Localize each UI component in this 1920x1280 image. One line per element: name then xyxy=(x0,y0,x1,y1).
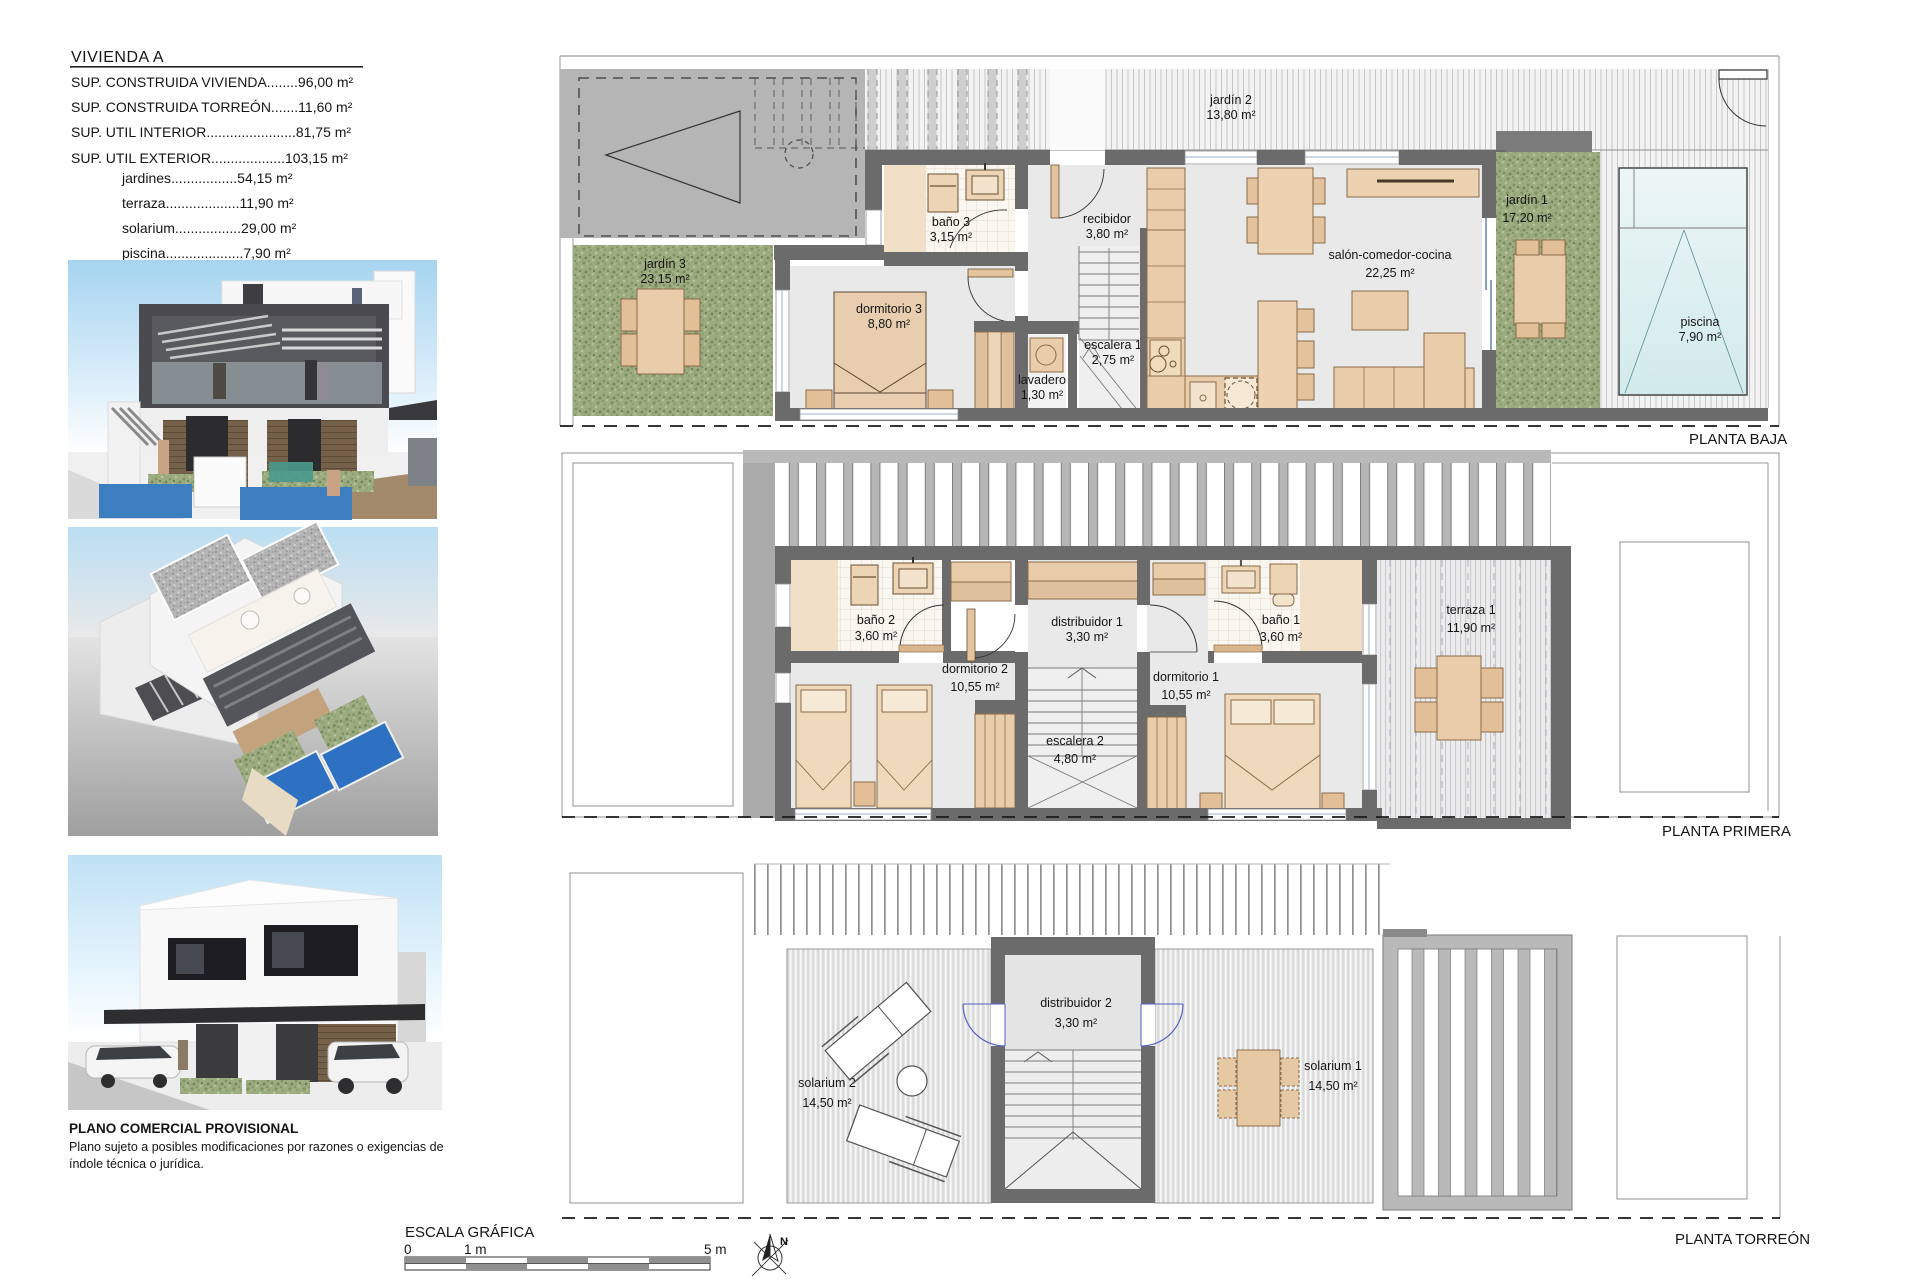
svg-text:piscina....................7,9: piscina....................7,90 m² xyxy=(122,245,291,261)
svg-text:22,25 m²: 22,25 m² xyxy=(1365,266,1414,280)
svg-text:PLANO COMERCIAL PROVISIONAL: PLANO COMERCIAL PROVISIONAL xyxy=(69,1121,298,1136)
svg-text:baño 2: baño 2 xyxy=(857,613,895,627)
svg-text:distribuidor 2: distribuidor 2 xyxy=(1040,996,1112,1010)
svg-text:3,30 m²: 3,30 m² xyxy=(1066,630,1108,644)
svg-text:SUP. CONSTRUIDA VIVIENDA......: SUP. CONSTRUIDA VIVIENDA........96,00 m² xyxy=(71,74,353,90)
svg-text:10,55 m²: 10,55 m² xyxy=(950,680,999,694)
svg-text:baño 1: baño 1 xyxy=(1262,613,1300,627)
svg-text:solarium 1: solarium 1 xyxy=(1304,1059,1362,1073)
svg-text:1 m: 1 m xyxy=(464,1242,487,1257)
svg-text:5 m: 5 m xyxy=(704,1242,727,1257)
svg-text:recibidor: recibidor xyxy=(1083,212,1131,226)
svg-text:14,50 m²: 14,50 m² xyxy=(1308,1079,1357,1093)
svg-text:SUP. UTIL EXTERIOR............: SUP. UTIL EXTERIOR...................103… xyxy=(71,150,348,166)
svg-text:dormitorio 3: dormitorio 3 xyxy=(856,302,922,316)
svg-text:solarium 2: solarium 2 xyxy=(798,1076,856,1090)
svg-text:14,50 m²: 14,50 m² xyxy=(802,1096,851,1110)
svg-text:escalera 2: escalera 2 xyxy=(1046,734,1104,748)
svg-text:dormitorio 2: dormitorio 2 xyxy=(942,662,1008,676)
svg-text:3,60 m²: 3,60 m² xyxy=(855,629,897,643)
svg-text:PLANTA TORREÓN: PLANTA TORREÓN xyxy=(1675,1231,1810,1248)
svg-text:índole técnica o jurídica.: índole técnica o jurídica. xyxy=(69,1157,204,1171)
svg-text:7,90 m²: 7,90 m² xyxy=(1679,330,1721,344)
svg-text:SUP. UTIL INTERIOR............: SUP. UTIL INTERIOR......................… xyxy=(71,124,351,140)
svg-text:13,80 m²: 13,80 m² xyxy=(1206,108,1255,122)
svg-text:3,80 m²: 3,80 m² xyxy=(1086,227,1128,241)
svg-text:8,80 m²: 8,80 m² xyxy=(868,317,910,331)
svg-text:lavadero: lavadero xyxy=(1018,373,1066,387)
svg-text:3,60 m²: 3,60 m² xyxy=(1260,630,1302,644)
svg-text:3,30 m²: 3,30 m² xyxy=(1055,1016,1097,1030)
svg-text:solarium.................29,00: solarium.................29,00 m² xyxy=(122,220,297,236)
svg-text:terraza...................11,9: terraza...................11,90 m² xyxy=(122,195,294,211)
svg-text:N: N xyxy=(780,1236,788,1248)
svg-text:salón-comedor-cocina: salón-comedor-cocina xyxy=(1329,248,1452,262)
svg-text:PLANTA PRIMERA: PLANTA PRIMERA xyxy=(1662,823,1791,840)
svg-text:piscina: piscina xyxy=(1681,315,1720,329)
svg-text:23,15 m²: 23,15 m² xyxy=(640,272,689,286)
svg-text:4,80 m²: 4,80 m² xyxy=(1054,752,1096,766)
svg-text:10,55 m²: 10,55 m² xyxy=(1161,688,1210,702)
svg-text:1,30 m²: 1,30 m² xyxy=(1021,388,1063,402)
svg-text:Plano sujeto a posibles modifi: Plano sujeto a posibles modificaciones p… xyxy=(69,1140,444,1154)
svg-text:distribuidor 1: distribuidor 1 xyxy=(1051,615,1123,629)
svg-text:SUP. CONSTRUIDA TORREÓN.......: SUP. CONSTRUIDA TORREÓN.......11,60 m² xyxy=(71,99,353,115)
svg-text:VIVIENDA A: VIVIENDA A xyxy=(71,49,164,66)
svg-text:ESCALA GRÁFICA: ESCALA GRÁFICA xyxy=(405,1224,534,1241)
svg-text:17,20 m²: 17,20 m² xyxy=(1502,211,1551,225)
svg-text:2,75 m²: 2,75 m² xyxy=(1092,353,1134,367)
svg-text:PLANTA BAJA: PLANTA BAJA xyxy=(1689,431,1787,448)
svg-text:baño 3: baño 3 xyxy=(932,215,970,229)
svg-text:3,15 m²: 3,15 m² xyxy=(930,230,972,244)
svg-text:escalera 1: escalera 1 xyxy=(1084,338,1142,352)
svg-text:jardín 1: jardín 1 xyxy=(1505,193,1548,207)
svg-text:jardín 3: jardín 3 xyxy=(643,257,686,271)
svg-text:0: 0 xyxy=(404,1242,412,1257)
svg-text:jardín 2: jardín 2 xyxy=(1209,93,1252,107)
svg-text:terraza 1: terraza 1 xyxy=(1446,603,1495,617)
svg-text:dormitorio 1: dormitorio 1 xyxy=(1153,670,1219,684)
svg-text:jardines.................54,15: jardines.................54,15 m² xyxy=(121,170,293,186)
svg-text:11,90 m²: 11,90 m² xyxy=(1447,621,1495,635)
